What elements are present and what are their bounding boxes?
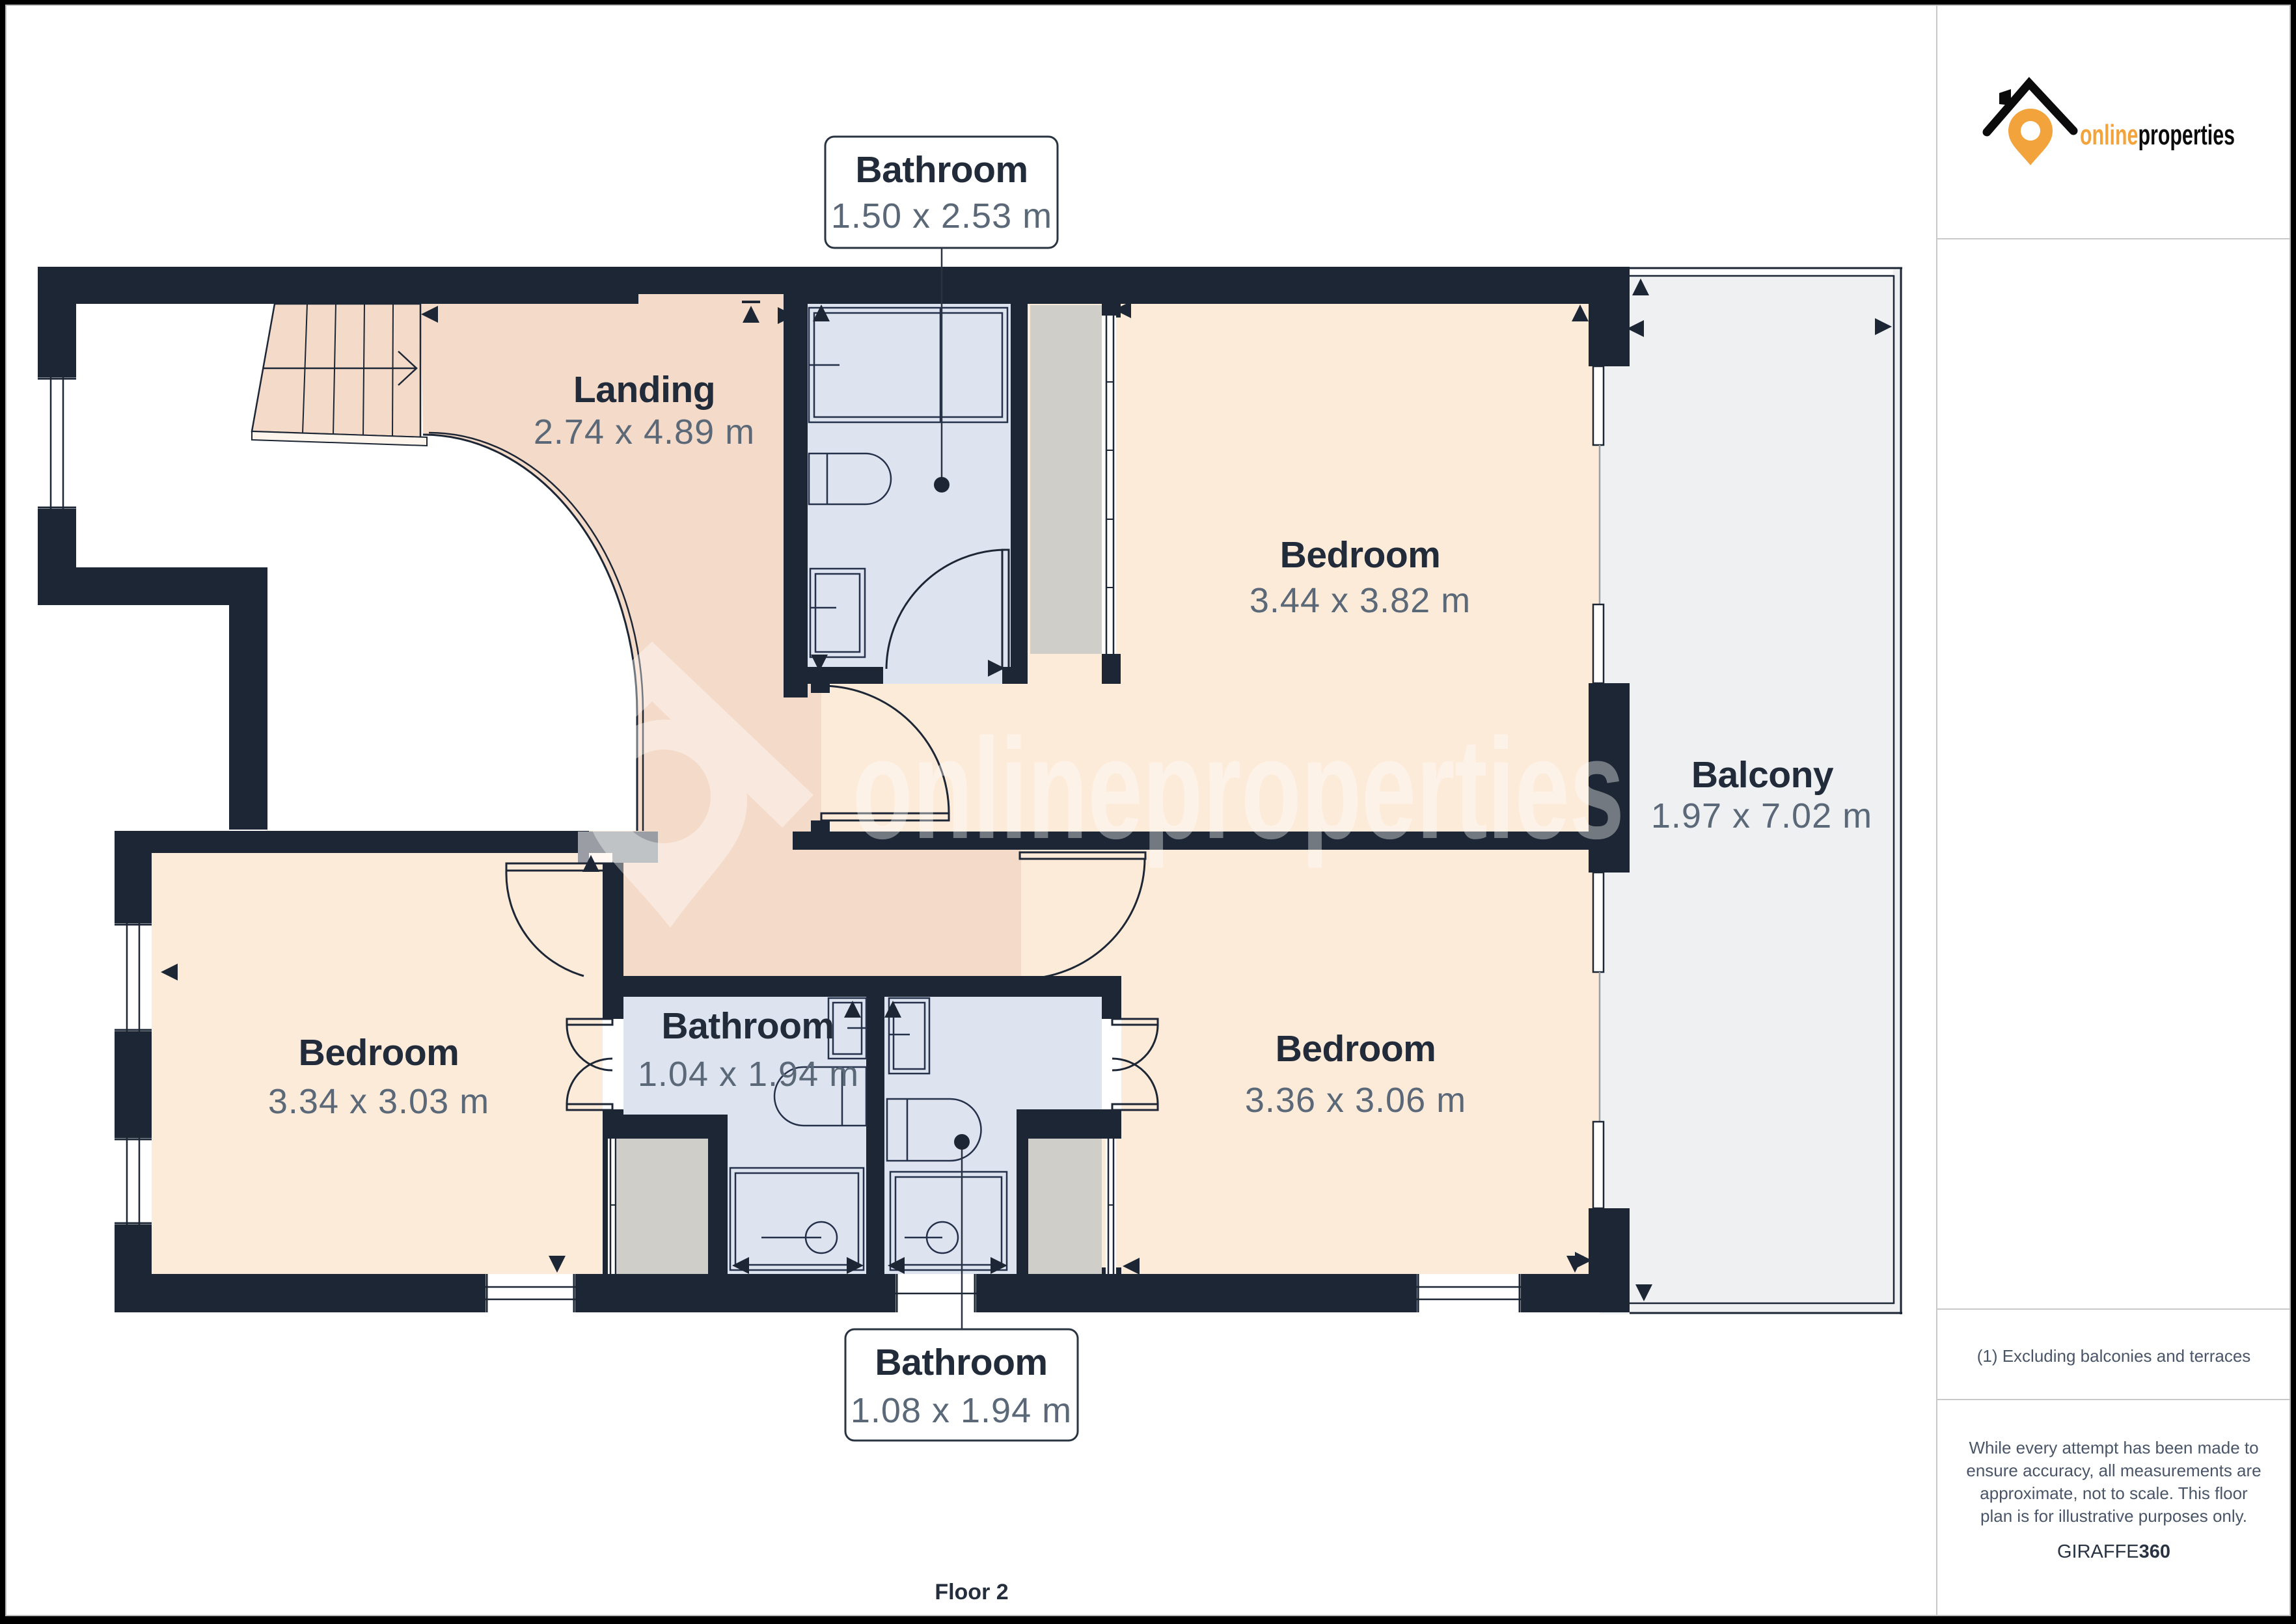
svg-text:While every attempt has been m: While every attempt has been made to — [1969, 1438, 2258, 1457]
svg-text:Bathroom: Bathroom — [661, 1005, 834, 1047]
svg-text:1.97 x 7.02 m: 1.97 x 7.02 m — [1651, 796, 1872, 835]
svg-text:(1) Excluding balconies and te: (1) Excluding balconies and terraces — [1977, 1346, 2251, 1366]
svg-text:Floor 2: Floor 2 — [935, 1580, 1008, 1604]
svg-text:1.04 x 1.94 m: 1.04 x 1.94 m — [638, 1055, 859, 1094]
svg-text:Bedroom: Bedroom — [1280, 534, 1441, 576]
svg-text:approximate, not to scale. Thi: approximate, not to scale. This floor — [1980, 1483, 2248, 1503]
svg-text:3.44 x 3.82 m: 3.44 x 3.82 m — [1250, 581, 1471, 620]
svg-text:Landing: Landing — [573, 369, 715, 411]
svg-text:onlineproperties: onlineproperties — [2080, 119, 2235, 151]
svg-text:onlineproperties: onlineproperties — [853, 709, 1624, 869]
svg-text:1.08 x 1.94 m: 1.08 x 1.94 m — [851, 1391, 1072, 1430]
svg-text:3.36 x 3.06 m: 3.36 x 3.06 m — [1245, 1081, 1466, 1120]
svg-text:Bathroom: Bathroom — [875, 1342, 1047, 1383]
svg-text:plan is for illustrative purpo: plan is for illustrative purposes only. — [1980, 1506, 2247, 1526]
svg-text:GIRAFFE360: GIRAFFE360 — [2057, 1541, 2170, 1562]
svg-text:Bedroom: Bedroom — [1276, 1028, 1436, 1070]
svg-text:2.74 x 4.89 m: 2.74 x 4.89 m — [534, 413, 755, 452]
svg-text:Balcony: Balcony — [1691, 754, 1834, 796]
svg-text:1.50 x 2.53 m: 1.50 x 2.53 m — [831, 196, 1052, 236]
svg-text:Bedroom: Bedroom — [299, 1032, 459, 1074]
svg-text:Bathroom: Bathroom — [855, 149, 1028, 191]
svg-text:3.34 x 3.03 m: 3.34 x 3.03 m — [268, 1082, 489, 1121]
svg-text:ensure accuracy, all measureme: ensure accuracy, all measurements are — [1966, 1461, 2261, 1480]
